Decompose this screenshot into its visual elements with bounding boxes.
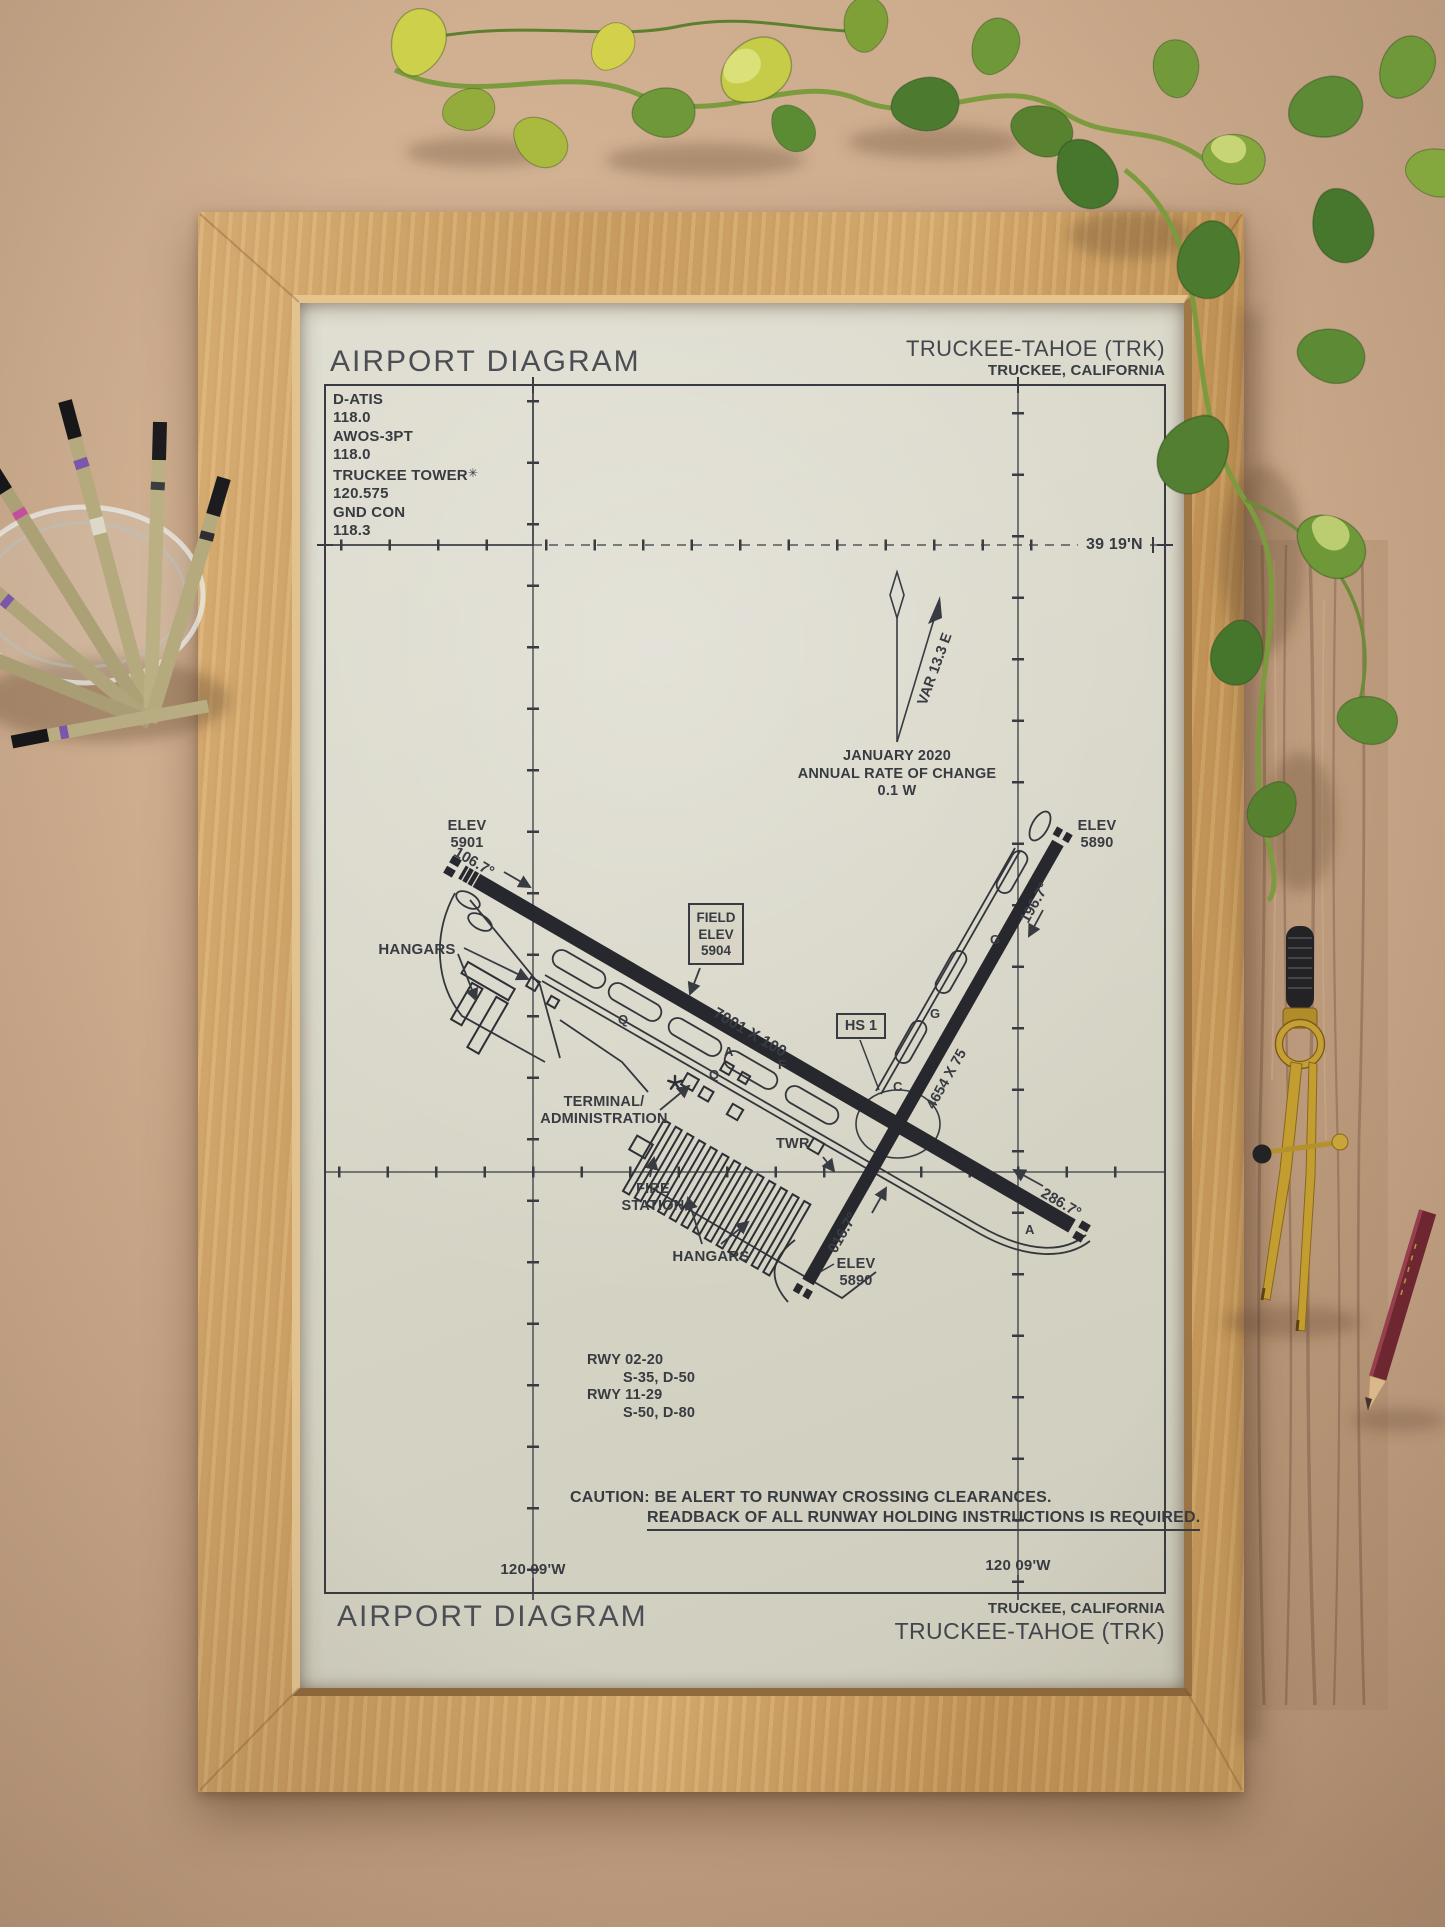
pencil-graphite-tip xyxy=(1365,1397,1372,1411)
comm-frequency-block: D-ATIS 118.0 AWOS-3PT 118.0 TRUCKEE TOWE… xyxy=(333,391,478,540)
pen-cup xyxy=(0,401,230,742)
wood-grain-strip xyxy=(1248,540,1388,1710)
elevation-rwy11: ELEV5901 xyxy=(448,818,487,852)
longitude-label-left: 120 09'W xyxy=(500,1561,565,1578)
field-elevation-box: FIELDELEV5904 xyxy=(688,903,744,965)
comm-line: TRUCKEE TOWER✳ xyxy=(333,464,478,485)
variation-rate-caption: ANNUAL RATE OF CHANGE xyxy=(798,766,997,784)
variation-date: JANUARY 2020 xyxy=(798,748,997,766)
comm-line: 118.3 xyxy=(333,522,478,540)
compass-leg xyxy=(1262,1062,1302,1300)
compass-leg xyxy=(1297,1062,1317,1331)
comm-line: 118.0 xyxy=(333,446,478,464)
compass-thumbwheel xyxy=(1253,1145,1272,1164)
caution-line2: READBACK OF ALL RUNWAY HOLDING INSTRUCTI… xyxy=(647,1509,1200,1531)
airport-name-bottom: TRUCKEE-TAHOE (TRK) xyxy=(895,1618,1165,1645)
hotspot-box: HS 1 xyxy=(836,1013,886,1039)
chart-title-top: AIRPORT DIAGRAM xyxy=(330,347,641,377)
comm-line: GND CON xyxy=(333,504,478,522)
elevation-rwy20: ELEV5890 xyxy=(1078,818,1117,852)
hangars-label-left: HANGARS xyxy=(378,941,455,958)
compass-hinge-ring xyxy=(1279,1023,1321,1065)
terminal-label: TERMINAL/ADMINISTRATION xyxy=(540,1094,667,1128)
fire-station-label: FIRESTATION xyxy=(622,1181,685,1215)
comm-line: AWOS-3PT xyxy=(333,428,478,446)
airport-city-top: TRUCKEE, CALIFORNIA xyxy=(988,362,1165,379)
comm-line: 120.575 xyxy=(333,485,478,503)
airport-name-top: TRUCKEE-TAHOE (TRK) xyxy=(906,336,1165,362)
longitude-label-right: 120 09'W xyxy=(985,1557,1050,1574)
pens xyxy=(0,401,224,742)
elevation-rwy02: ELEV5890 xyxy=(837,1256,876,1290)
caution-line1: CAUTION: BE ALERT TO RUNWAY CROSSING CLE… xyxy=(570,1489,1052,1508)
plant-vine-top xyxy=(378,0,1274,216)
runway-data-block: RWY 02-20 S-35, D-50 RWY 11-29 S-50, D-8… xyxy=(587,1352,695,1423)
hangars-label-bottom: HANGARS xyxy=(672,1248,749,1265)
variation-rate-value: 0.1 W xyxy=(798,783,997,801)
compass-grip xyxy=(1286,926,1314,1010)
pencil xyxy=(1350,1210,1445,1432)
latitude-label: 39 19'N xyxy=(1086,536,1143,555)
part-time-star-icon: ✳ xyxy=(468,466,478,480)
airport-city-bottom: TRUCKEE, CALIFORNIA xyxy=(988,1600,1165,1617)
magnetic-variation-note: JANUARY 2020 ANNUAL RATE OF CHANGE 0.1 W xyxy=(798,748,997,801)
pencil-wood-tip xyxy=(1368,1376,1386,1411)
chart-title-bottom: AIRPORT DIAGRAM xyxy=(337,1602,648,1632)
tower-label: TWR xyxy=(776,1136,810,1153)
photo-scene: VAR 13.3 E 7001 X 100 4654 X 75 106.7° 1… xyxy=(0,0,1445,1927)
comm-line: D-ATIS xyxy=(333,391,478,409)
comm-line: 118.0 xyxy=(333,409,478,427)
